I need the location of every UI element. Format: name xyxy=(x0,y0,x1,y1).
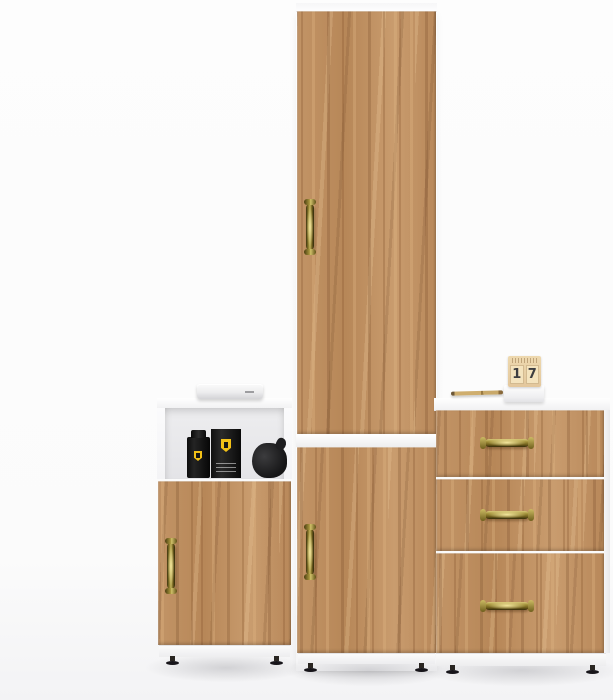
calendar-digit-right: 7 xyxy=(526,365,540,384)
drawer-chest xyxy=(434,398,610,666)
tall-cabinet-upper-door xyxy=(297,11,436,434)
device-slot xyxy=(245,391,254,393)
left-cabinet-foot-right xyxy=(270,656,283,665)
chest-drawer-2 xyxy=(436,479,604,551)
media-device xyxy=(197,384,263,399)
left-cabinet-door xyxy=(158,481,291,645)
tall-cabinet-middle-band xyxy=(296,434,437,447)
left-door-handle xyxy=(167,543,175,589)
calendar-digits: 1 7 xyxy=(510,365,539,384)
black-pouch xyxy=(252,443,287,478)
calendar-digit-left: 1 xyxy=(510,365,524,384)
block-calendar: 1 7 xyxy=(508,356,541,387)
drawer-2-handle xyxy=(485,511,529,519)
chest-foot-left xyxy=(446,665,459,674)
ferrari-shield-icon xyxy=(221,439,231,452)
drawer-3-handle xyxy=(485,602,529,610)
tall-cabinet-foot-left xyxy=(304,663,317,672)
perfume-box-label-text xyxy=(216,463,236,473)
tall-cabinet xyxy=(296,3,437,671)
chest-drawer-1 xyxy=(436,410,604,477)
calendar-month-text xyxy=(512,358,537,363)
chest-drawer-3 xyxy=(436,553,604,653)
pen xyxy=(451,390,503,395)
left-cabinet-foot-left xyxy=(166,656,179,665)
chest-plinth xyxy=(436,653,606,666)
calendar-base xyxy=(504,385,544,402)
lower-door-handle xyxy=(306,529,314,575)
tall-cabinet-foot-right xyxy=(415,663,428,672)
chest-side-panel xyxy=(604,410,610,653)
ferrari-shield-icon xyxy=(194,451,202,461)
tall-cabinet-lower-door xyxy=(297,447,436,653)
product-photo-scene: 1 7 xyxy=(0,0,613,700)
perfume-bottle-cap xyxy=(191,430,206,438)
perfume-box xyxy=(211,429,241,478)
drawer-1-handle xyxy=(485,439,529,447)
perfume-bottle xyxy=(187,437,210,478)
chest-foot-right xyxy=(586,665,599,674)
upper-door-handle xyxy=(306,204,314,250)
